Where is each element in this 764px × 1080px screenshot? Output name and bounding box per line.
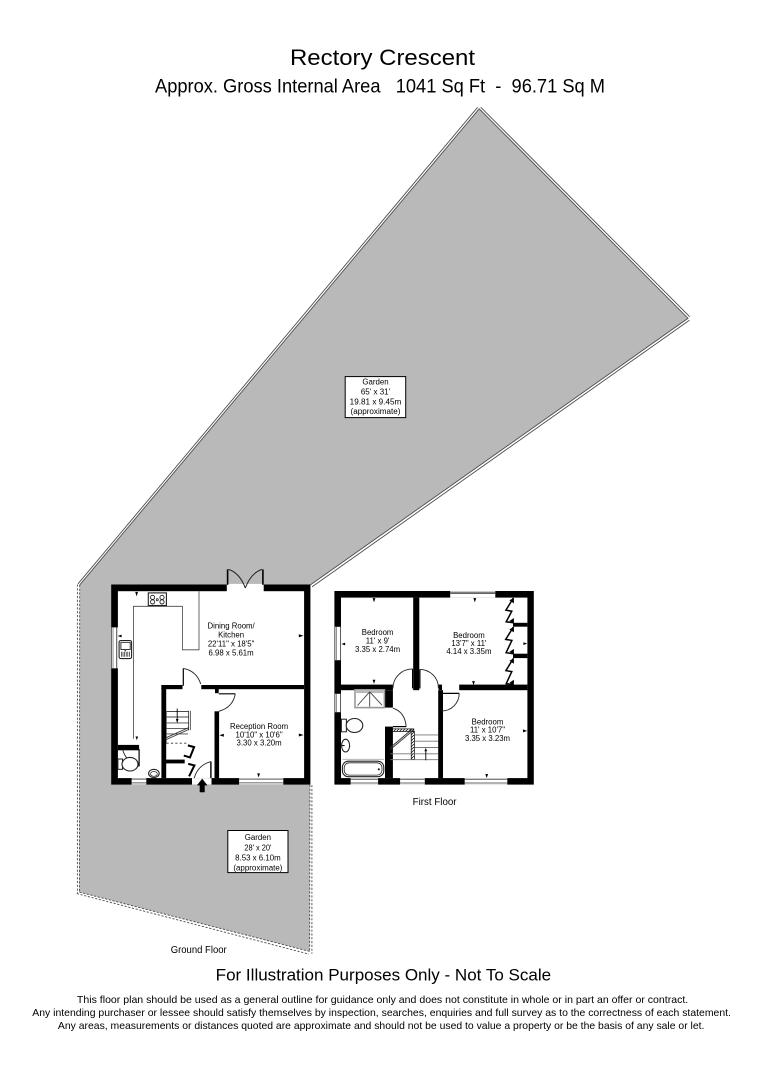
svg-text:Ground Floor: Ground Floor bbox=[171, 944, 227, 956]
svg-text:For Illustration Purposes Only: For Illustration Purposes Only - Not To … bbox=[216, 966, 551, 985]
svg-text:Any areas, measurements or dis: Any areas, measurements or distances quo… bbox=[58, 1021, 704, 1032]
svg-text:4.14 x 3.35m: 4.14 x 3.35m bbox=[446, 647, 491, 656]
svg-text:(approximate): (approximate) bbox=[351, 407, 401, 416]
svg-text:First Floor: First Floor bbox=[413, 796, 457, 808]
svg-text:Dining Room/: Dining Room/ bbox=[207, 622, 255, 631]
svg-text:65' x 31': 65' x 31' bbox=[361, 388, 391, 397]
svg-text:(approximate): (approximate) bbox=[233, 864, 282, 873]
svg-text:3.30 x 3.20m: 3.30 x 3.20m bbox=[237, 738, 282, 747]
svg-text:6.98 x 5.61m: 6.98 x 5.61m bbox=[209, 649, 254, 658]
svg-text:Rectory Crescent: Rectory Crescent bbox=[290, 45, 476, 70]
svg-text:8.53 x 6.10m: 8.53 x 6.10m bbox=[235, 854, 281, 863]
svg-text:Approx. Gross Internal Area: Approx. Gross Internal Area 1041 Sq Ft -… bbox=[155, 77, 605, 98]
svg-text:19.81 x 9.45m: 19.81 x 9.45m bbox=[350, 398, 402, 407]
svg-text:Any intending purchaser or les: Any intending purchaser or lessee should… bbox=[32, 1008, 731, 1019]
svg-text:22'11" x 18'5": 22'11" x 18'5" bbox=[208, 640, 255, 649]
svg-text:Garden: Garden bbox=[245, 833, 271, 842]
svg-text:Garden: Garden bbox=[362, 377, 388, 386]
svg-text:3.35 x 3.23m: 3.35 x 3.23m bbox=[465, 734, 510, 743]
svg-text:Kitchen: Kitchen bbox=[218, 631, 244, 640]
svg-text:This floor plan should be used: This floor plan should be used as a gene… bbox=[77, 995, 688, 1006]
svg-text:28' x 20': 28' x 20' bbox=[244, 843, 272, 852]
svg-text:3.35 x 2.74m: 3.35 x 2.74m bbox=[355, 645, 400, 654]
